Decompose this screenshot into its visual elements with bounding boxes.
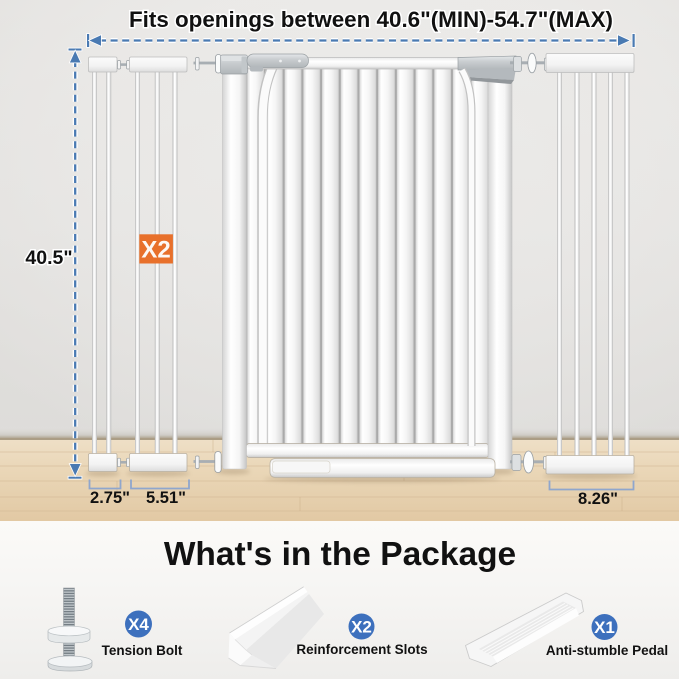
svg-text:Fits openings between 40.6"(MI: Fits openings between 40.6"(MIN)-54.7"(M… xyxy=(129,7,613,32)
svg-text:40.5": 40.5" xyxy=(25,247,72,269)
svg-text:8.26": 8.26" xyxy=(578,490,618,508)
svg-text:Tension Bolt: Tension Bolt xyxy=(102,643,183,658)
svg-text:Reinforcement Slots: Reinforcement Slots xyxy=(296,642,427,657)
svg-text:X4: X4 xyxy=(128,615,149,634)
svg-text:What's in the Package: What's in the Package xyxy=(164,536,516,573)
svg-text:2.75": 2.75" xyxy=(90,489,130,507)
svg-text:X2: X2 xyxy=(141,237,170,264)
svg-text:X1: X1 xyxy=(594,618,615,637)
svg-text:5.51": 5.51" xyxy=(146,489,186,507)
svg-text:X2: X2 xyxy=(351,618,372,637)
svg-text:Anti-stumble Pedal: Anti-stumble Pedal xyxy=(546,643,668,658)
